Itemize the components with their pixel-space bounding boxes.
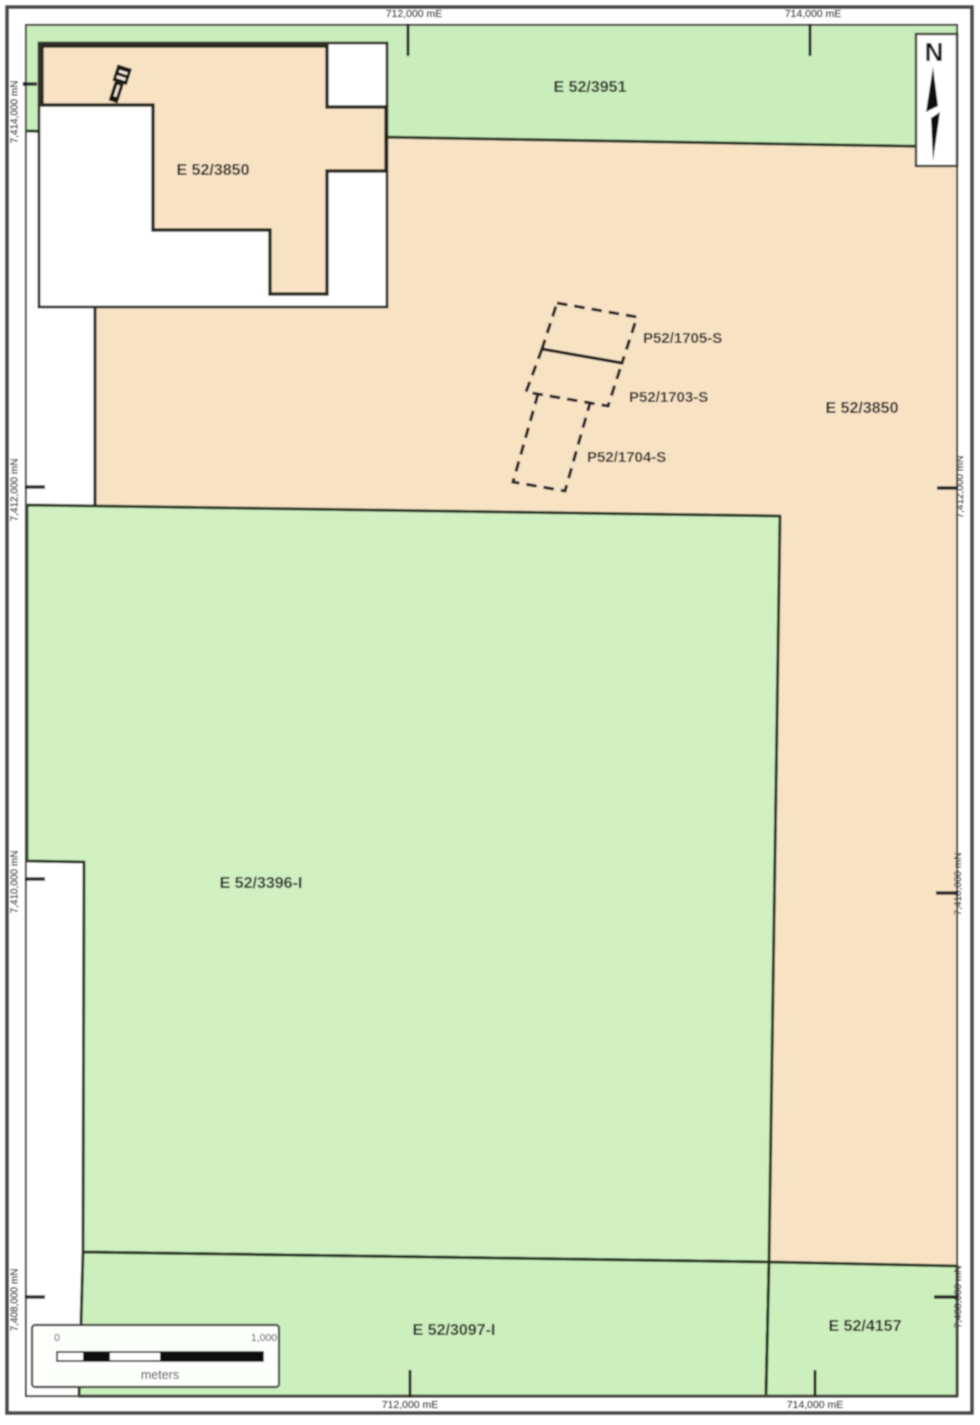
svg-text:714,000 mE: 714,000 mE — [787, 1399, 844, 1411]
svg-text:7,412,000 mN: 7,412,000 mN — [10, 459, 21, 522]
svg-text:7,410,000 mN: 7,410,000 mN — [10, 851, 21, 914]
svg-text:E 52/3097-I: E 52/3097-I — [413, 1322, 496, 1339]
svg-text:7,410,000 mN: 7,410,000 mN — [953, 853, 964, 916]
svg-text:N: N — [925, 37, 944, 67]
svg-text:7,412,000 mN: 7,412,000 mN — [955, 456, 966, 519]
svg-text:E 52/4157: E 52/4157 — [829, 1318, 902, 1335]
svg-text:P52/1704-S: P52/1704-S — [587, 449, 666, 466]
svg-text:712,000 mE: 712,000 mE — [386, 8, 443, 20]
svg-text:7,414,000 mN: 7,414,000 mN — [10, 81, 21, 144]
svg-text:meters: meters — [141, 1368, 179, 1382]
svg-text:0: 0 — [54, 1332, 60, 1344]
svg-text:E 52/3396-I: E 52/3396-I — [220, 875, 303, 892]
svg-text:P52/1705-S: P52/1705-S — [643, 330, 722, 347]
svg-text:7,408,000 mN: 7,408,000 mN — [10, 1269, 21, 1332]
svg-text:E 52/3850: E 52/3850 — [826, 400, 899, 417]
svg-text:1,000: 1,000 — [251, 1332, 277, 1344]
svg-text:P52/1703-S: P52/1703-S — [629, 389, 708, 406]
svg-text:E 52/3951: E 52/3951 — [554, 79, 627, 96]
svg-text:712,000 mE: 712,000 mE — [382, 1399, 439, 1411]
svg-text:E 52/3850: E 52/3850 — [177, 162, 250, 179]
svg-text:7,408,000 mN: 7,408,000 mN — [953, 1266, 964, 1329]
svg-text:714,000 mE: 714,000 mE — [785, 8, 842, 20]
